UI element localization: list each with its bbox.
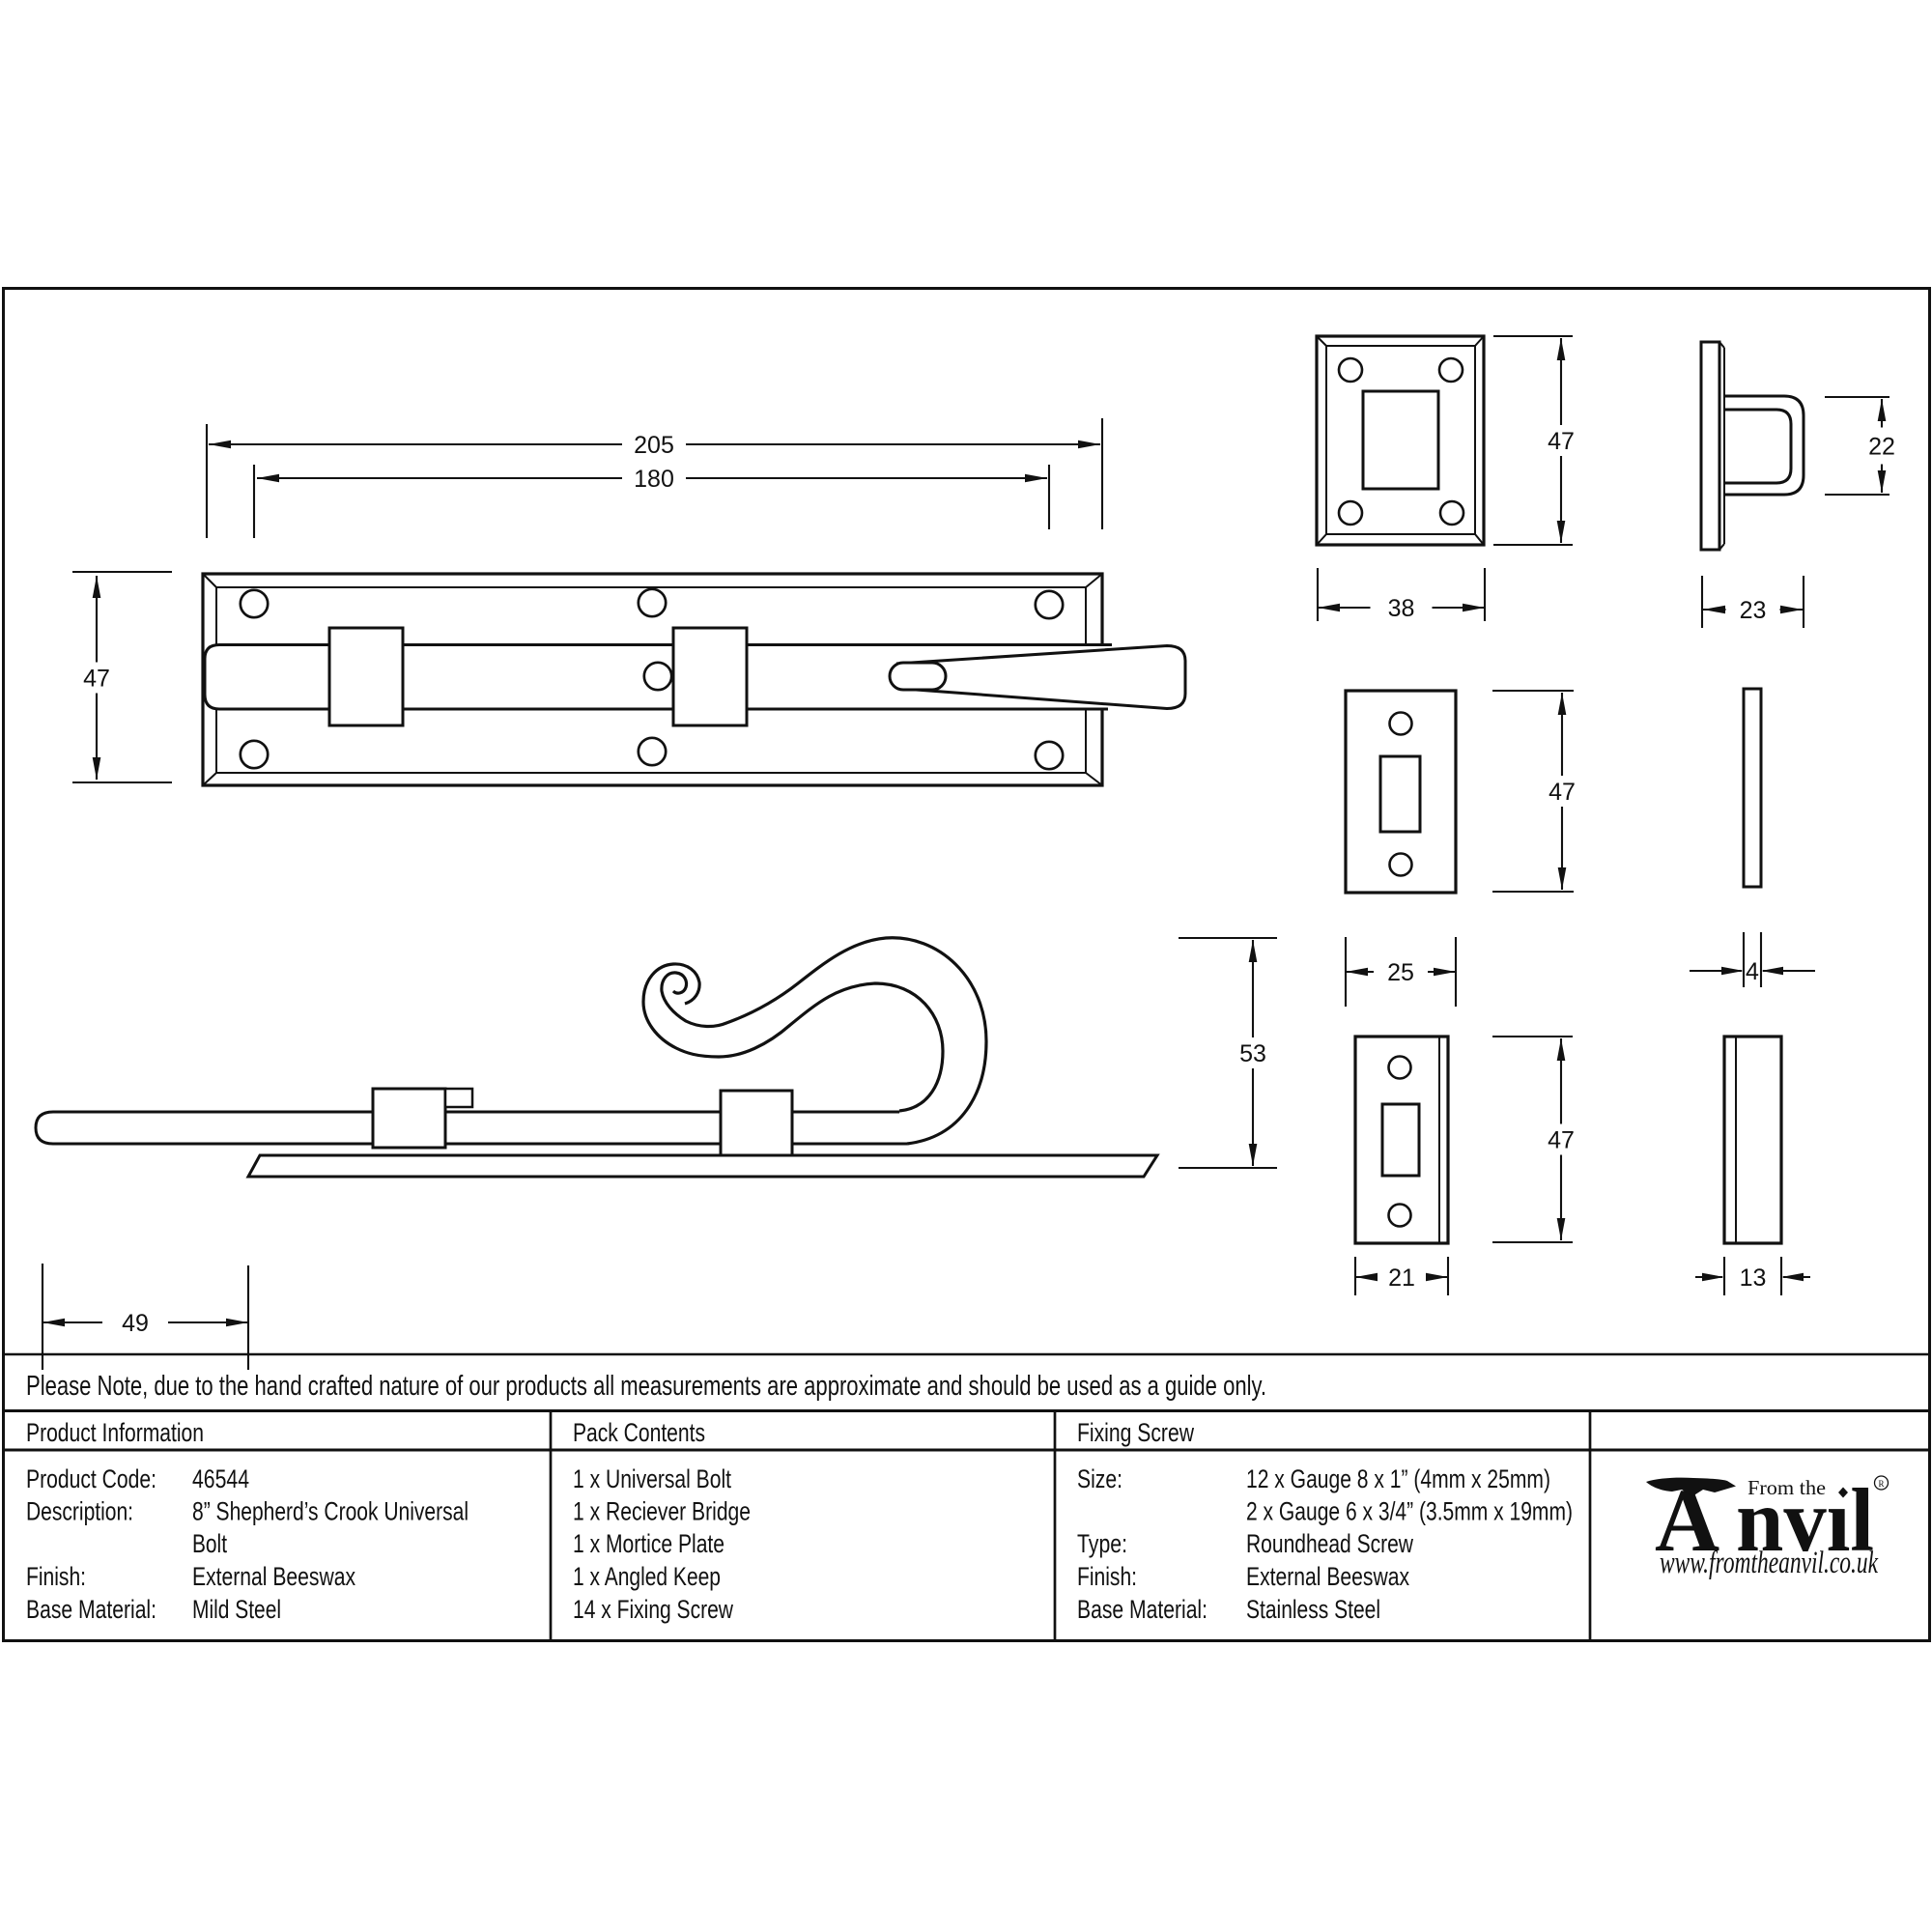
svg-text:49: 49: [122, 1310, 149, 1337]
svg-text:www.fromtheanvil.co.uk: www.fromtheanvil.co.uk: [1660, 1546, 1879, 1580]
svg-text:14 x Fixing Screw: 14 x Fixing Screw: [573, 1595, 733, 1624]
svg-text:8” Shepherd’s Crook Universal: 8” Shepherd’s Crook Universal: [192, 1497, 469, 1526]
svg-text:External Beeswax: External Beeswax: [1246, 1562, 1409, 1591]
svg-text:Mild Steel: Mild Steel: [192, 1595, 281, 1624]
svg-text:4: 4: [1746, 958, 1759, 985]
svg-text:1 x Mortice Plate: 1 x Mortice Plate: [573, 1529, 724, 1558]
svg-text:Pack Contents: Pack Contents: [573, 1418, 705, 1447]
svg-text:13: 13: [1740, 1264, 1767, 1292]
svg-text:46544: 46544: [192, 1464, 249, 1493]
svg-text:Product Information: Product Information: [26, 1418, 204, 1447]
svg-text:180: 180: [634, 466, 674, 493]
svg-text:Roundhead Screw: Roundhead Screw: [1246, 1529, 1413, 1558]
svg-text:Bolt: Bolt: [192, 1529, 227, 1558]
svg-text:Size:: Size:: [1077, 1464, 1122, 1493]
svg-text:Finish:: Finish:: [26, 1562, 86, 1591]
svg-text:1 x Reciever Bridge: 1 x Reciever Bridge: [573, 1497, 751, 1526]
svg-text:23: 23: [1740, 597, 1767, 624]
svg-text:1 x Universal Bolt: 1 x Universal Bolt: [573, 1464, 731, 1493]
svg-text:12 x Gauge 8 x 1” (4mm x 25mm): 12 x Gauge 8 x 1” (4mm x 25mm): [1246, 1464, 1550, 1493]
svg-text:47: 47: [1548, 779, 1576, 806]
svg-text:From the: From the: [1747, 1476, 1826, 1499]
svg-text:38: 38: [1388, 595, 1415, 622]
svg-text:R: R: [1878, 1479, 1884, 1489]
svg-text:21: 21: [1388, 1264, 1415, 1292]
svg-text:Please Note, due to the hand c: Please Note, due to the hand crafted nat…: [26, 1371, 1266, 1402]
svg-text:Description:: Description:: [26, 1497, 133, 1526]
svg-text:2 x Gauge 6 x 3/4” (3.5mm x 19: 2 x Gauge 6 x 3/4” (3.5mm x 19mm): [1246, 1497, 1573, 1526]
svg-text:53: 53: [1239, 1040, 1266, 1067]
svg-text:Stainless Steel: Stainless Steel: [1246, 1595, 1380, 1624]
svg-text:47: 47: [1548, 1126, 1575, 1153]
svg-text:External Beeswax: External Beeswax: [192, 1562, 355, 1591]
svg-text:1 x Angled Keep: 1 x Angled Keep: [573, 1562, 721, 1591]
svg-text:25: 25: [1387, 959, 1414, 986]
svg-text:Product Code:: Product Code:: [26, 1464, 156, 1493]
svg-text:47: 47: [83, 665, 110, 692]
svg-text:Type:: Type:: [1077, 1529, 1127, 1558]
svg-text:Fixing Screw: Fixing Screw: [1077, 1418, 1194, 1447]
svg-text:47: 47: [1548, 428, 1575, 455]
svg-text:Base Material:: Base Material:: [26, 1595, 156, 1624]
svg-text:205: 205: [634, 432, 674, 459]
svg-text:Base Material:: Base Material:: [1077, 1595, 1207, 1624]
svg-text:22: 22: [1868, 433, 1895, 460]
svg-text:Finish:: Finish:: [1077, 1562, 1137, 1591]
